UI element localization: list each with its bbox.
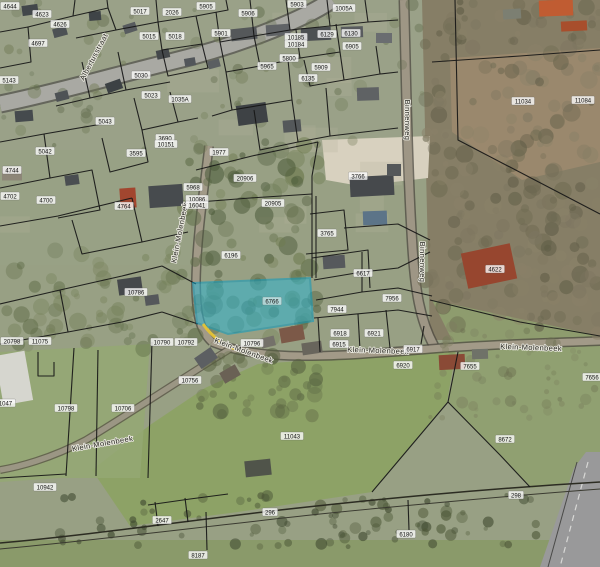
parcel-label-6196: 6196 bbox=[221, 251, 240, 259]
parcel-label-4744: 4744 bbox=[2, 166, 21, 174]
parcel-label-3595: 3595 bbox=[126, 149, 145, 157]
parcel-label-5023: 5023 bbox=[141, 91, 160, 99]
building bbox=[387, 164, 401, 176]
parcel-label-5968: 5968 bbox=[183, 183, 202, 191]
svg-text:5015: 5015 bbox=[142, 34, 156, 40]
parcel-label-4644: 4644 bbox=[0, 2, 19, 10]
svg-text:7656: 7656 bbox=[585, 375, 599, 381]
svg-text:4697: 4697 bbox=[31, 41, 45, 47]
svg-text:7956: 7956 bbox=[385, 296, 399, 302]
svg-text:6135: 6135 bbox=[301, 76, 315, 82]
svg-text:5901: 5901 bbox=[214, 31, 228, 37]
parcel-label-10756: 10756 bbox=[179, 376, 202, 384]
parcel-label-16041: 16041 bbox=[186, 201, 209, 209]
svg-text:6766: 6766 bbox=[265, 299, 279, 305]
building bbox=[357, 87, 379, 101]
parcel-label-6918: 6918 bbox=[330, 329, 349, 337]
parcel-label-6130: 6130 bbox=[341, 29, 360, 37]
svg-text:5800: 5800 bbox=[282, 56, 296, 62]
svg-text:6917: 6917 bbox=[406, 347, 420, 353]
svg-text:10184: 10184 bbox=[288, 42, 305, 48]
parcel-label-6917: 6917 bbox=[403, 345, 422, 353]
svg-text:20905: 20905 bbox=[265, 201, 282, 207]
svg-text:11043: 11043 bbox=[284, 434, 301, 440]
parcel-label-10786: 10786 bbox=[125, 288, 148, 296]
parcel-label-8672: 8672 bbox=[495, 435, 514, 443]
building bbox=[323, 255, 346, 270]
building bbox=[236, 102, 268, 126]
svg-text:3766: 3766 bbox=[351, 174, 365, 180]
svg-text:4744: 4744 bbox=[5, 168, 19, 174]
parcel-label-4697: 4697 bbox=[28, 39, 47, 47]
parcel-label-298: 298 bbox=[508, 491, 523, 499]
svg-text:4622: 4622 bbox=[488, 267, 502, 273]
svg-text:5017: 5017 bbox=[133, 9, 147, 15]
parcel-label-6129: 6129 bbox=[317, 30, 336, 38]
svg-text:2647: 2647 bbox=[155, 518, 169, 524]
svg-text:4764: 4764 bbox=[117, 204, 131, 210]
parcel-label-6617: 6617 bbox=[353, 269, 372, 277]
parcel-label-7656: 7656 bbox=[582, 373, 600, 381]
svg-text:5909: 5909 bbox=[314, 65, 328, 71]
street-label: Binnenweg bbox=[403, 100, 412, 141]
svg-text:16041: 16041 bbox=[189, 203, 206, 209]
parcel-label-296: 296 bbox=[262, 508, 277, 516]
parcel-label-11047: 11047 bbox=[0, 399, 16, 407]
parcel-label-1035A: 1035A bbox=[169, 95, 192, 103]
svg-text:4700: 4700 bbox=[39, 198, 53, 204]
svg-text:6905: 6905 bbox=[345, 44, 359, 50]
svg-text:11084: 11084 bbox=[575, 98, 592, 104]
parcel-label-10792: 10792 bbox=[175, 338, 198, 346]
parcel-label-6180: 6180 bbox=[396, 530, 415, 538]
svg-text:11034: 11034 bbox=[515, 99, 532, 105]
parcel-label-20905: 20905 bbox=[262, 199, 285, 207]
parcel-label-10790: 10790 bbox=[151, 338, 174, 346]
svg-text:1977: 1977 bbox=[212, 150, 226, 156]
svg-text:11075: 11075 bbox=[32, 339, 49, 345]
svg-text:6617: 6617 bbox=[356, 271, 370, 277]
svg-text:3595: 3595 bbox=[129, 151, 143, 157]
svg-text:1035A: 1035A bbox=[171, 97, 188, 103]
svg-text:5965: 5965 bbox=[260, 64, 274, 70]
svg-text:10796: 10796 bbox=[244, 341, 261, 347]
svg-text:5968: 5968 bbox=[186, 185, 200, 191]
svg-text:5023: 5023 bbox=[144, 93, 158, 99]
parcel-label-6920: 6920 bbox=[393, 361, 412, 369]
svg-text:4626: 4626 bbox=[53, 22, 67, 28]
parcel-label-1977: 1977 bbox=[209, 148, 228, 156]
parcel-label-2647: 2647 bbox=[152, 516, 171, 524]
parcel-label-10706: 10706 bbox=[112, 404, 135, 412]
svg-text:11047: 11047 bbox=[0, 401, 13, 407]
parcel-label-6915: 6915 bbox=[329, 340, 348, 348]
parcel-label-5965: 5965 bbox=[257, 62, 276, 70]
parcel-label-11084: 11084 bbox=[572, 96, 595, 104]
parcel-label-20906: 20906 bbox=[234, 174, 257, 182]
svg-text:5903: 5903 bbox=[290, 2, 304, 8]
parcel-label-6766: 6766 bbox=[262, 297, 281, 305]
parcel-label-5909: 5909 bbox=[311, 63, 330, 71]
parcel-label-10151: 10151 bbox=[155, 140, 178, 148]
svg-text:7655: 7655 bbox=[463, 364, 477, 370]
svg-text:5905: 5905 bbox=[199, 4, 213, 10]
building bbox=[561, 20, 587, 31]
svg-text:10798: 10798 bbox=[58, 406, 75, 412]
svg-text:8672: 8672 bbox=[498, 437, 512, 443]
building bbox=[244, 459, 272, 478]
svg-text:298: 298 bbox=[511, 493, 522, 499]
building bbox=[503, 8, 522, 19]
parcel-label-4764: 4764 bbox=[114, 202, 133, 210]
aerial-cadastral-map[interactable]: Aerial cadastral parcel map with highlig… bbox=[0, 0, 600, 567]
parcel-label-5015: 5015 bbox=[139, 32, 158, 40]
parcel-label-2026: 2026 bbox=[162, 8, 181, 16]
svg-text:6918: 6918 bbox=[333, 331, 347, 337]
svg-text:20798: 20798 bbox=[4, 339, 21, 345]
parcel-label-11043: 11043 bbox=[281, 432, 304, 440]
street-label: Binnenweg bbox=[418, 242, 427, 283]
parcel-label-5043: 5043 bbox=[95, 117, 114, 125]
svg-text:4702: 4702 bbox=[3, 194, 17, 200]
parcel-label-11034: 11034 bbox=[512, 97, 535, 105]
parcel-label-4702: 4702 bbox=[0, 192, 19, 200]
svg-text:6180: 6180 bbox=[399, 532, 413, 538]
parcel-label-3765: 3765 bbox=[317, 229, 336, 237]
parcel-label-6921: 6921 bbox=[364, 329, 383, 337]
building bbox=[15, 110, 34, 123]
parcel-label-4622: 4622 bbox=[485, 265, 504, 273]
svg-text:5043: 5043 bbox=[98, 119, 112, 125]
building bbox=[363, 211, 387, 226]
parcel-label-5143: 5143 bbox=[0, 76, 19, 84]
parcel-label-5018: 5018 bbox=[165, 32, 184, 40]
svg-text:20906: 20906 bbox=[237, 176, 254, 182]
svg-text:6196: 6196 bbox=[224, 253, 238, 259]
building bbox=[283, 119, 302, 133]
parcel-label-10942: 10942 bbox=[34, 483, 57, 491]
svg-text:10942: 10942 bbox=[37, 485, 54, 491]
parcel-label-5030: 5030 bbox=[131, 71, 150, 79]
parcel-label-6135: 6135 bbox=[298, 74, 317, 82]
svg-text:4623: 4623 bbox=[35, 12, 49, 18]
parcel-label-7944: 7944 bbox=[327, 305, 346, 313]
svg-text:10756: 10756 bbox=[182, 378, 199, 384]
parcel-label-1005A: 1005A bbox=[333, 4, 356, 12]
svg-text:10151: 10151 bbox=[158, 142, 175, 148]
building bbox=[148, 184, 183, 208]
building bbox=[376, 33, 392, 43]
parcel-label-4626: 4626 bbox=[50, 20, 69, 28]
parcel-label-7956: 7956 bbox=[382, 294, 401, 302]
map-canvas[interactable]: AlbertusstraatBinnenwegBinnenwegKlein-Mo… bbox=[0, 0, 600, 567]
svg-text:4644: 4644 bbox=[3, 4, 17, 10]
svg-text:5030: 5030 bbox=[134, 73, 148, 79]
parcel-label-5903: 5903 bbox=[287, 0, 306, 8]
parcel-label-10796: 10796 bbox=[241, 339, 264, 347]
svg-text:5042: 5042 bbox=[38, 149, 52, 155]
svg-text:10706: 10706 bbox=[115, 406, 132, 412]
svg-text:8187: 8187 bbox=[191, 553, 205, 559]
building bbox=[64, 174, 79, 186]
svg-text:5906: 5906 bbox=[241, 11, 255, 17]
svg-text:7944: 7944 bbox=[330, 307, 344, 313]
svg-text:6920: 6920 bbox=[396, 363, 410, 369]
svg-text:1005A: 1005A bbox=[335, 6, 352, 12]
parcel-label-10798: 10798 bbox=[55, 404, 78, 412]
parcel-label-3766: 3766 bbox=[348, 172, 367, 180]
parcel-label-8187: 8187 bbox=[188, 551, 207, 559]
svg-text:3765: 3765 bbox=[320, 231, 334, 237]
parcel-label-5905: 5905 bbox=[196, 2, 215, 10]
parcel-label-10184: 10184 bbox=[285, 40, 308, 48]
parcel-label-5017: 5017 bbox=[130, 7, 149, 15]
building bbox=[539, 0, 574, 17]
svg-text:5143: 5143 bbox=[2, 78, 16, 84]
svg-text:6921: 6921 bbox=[367, 331, 381, 337]
parcel-label-5906: 5906 bbox=[238, 9, 257, 17]
svg-text:6129: 6129 bbox=[320, 32, 334, 38]
parcel-label-4623: 4623 bbox=[32, 10, 51, 18]
parcel-label-7655: 7655 bbox=[460, 362, 479, 370]
parcel-label-20798: 20798 bbox=[1, 337, 24, 345]
svg-text:10792: 10792 bbox=[178, 340, 195, 346]
parcel-label-11075: 11075 bbox=[29, 337, 52, 345]
parcel-label-5901: 5901 bbox=[211, 29, 230, 37]
parcel-label-6905: 6905 bbox=[342, 42, 361, 50]
building bbox=[472, 349, 488, 360]
svg-text:2026: 2026 bbox=[165, 10, 179, 16]
svg-text:6915: 6915 bbox=[332, 342, 346, 348]
svg-text:296: 296 bbox=[265, 510, 276, 516]
svg-text:6130: 6130 bbox=[344, 31, 358, 37]
parcel-label-4700: 4700 bbox=[36, 196, 55, 204]
parcel-label-5042: 5042 bbox=[35, 147, 54, 155]
parcel-label-5800: 5800 bbox=[279, 54, 298, 62]
svg-text:10790: 10790 bbox=[154, 340, 171, 346]
svg-text:5018: 5018 bbox=[168, 34, 182, 40]
svg-text:10786: 10786 bbox=[128, 290, 145, 296]
